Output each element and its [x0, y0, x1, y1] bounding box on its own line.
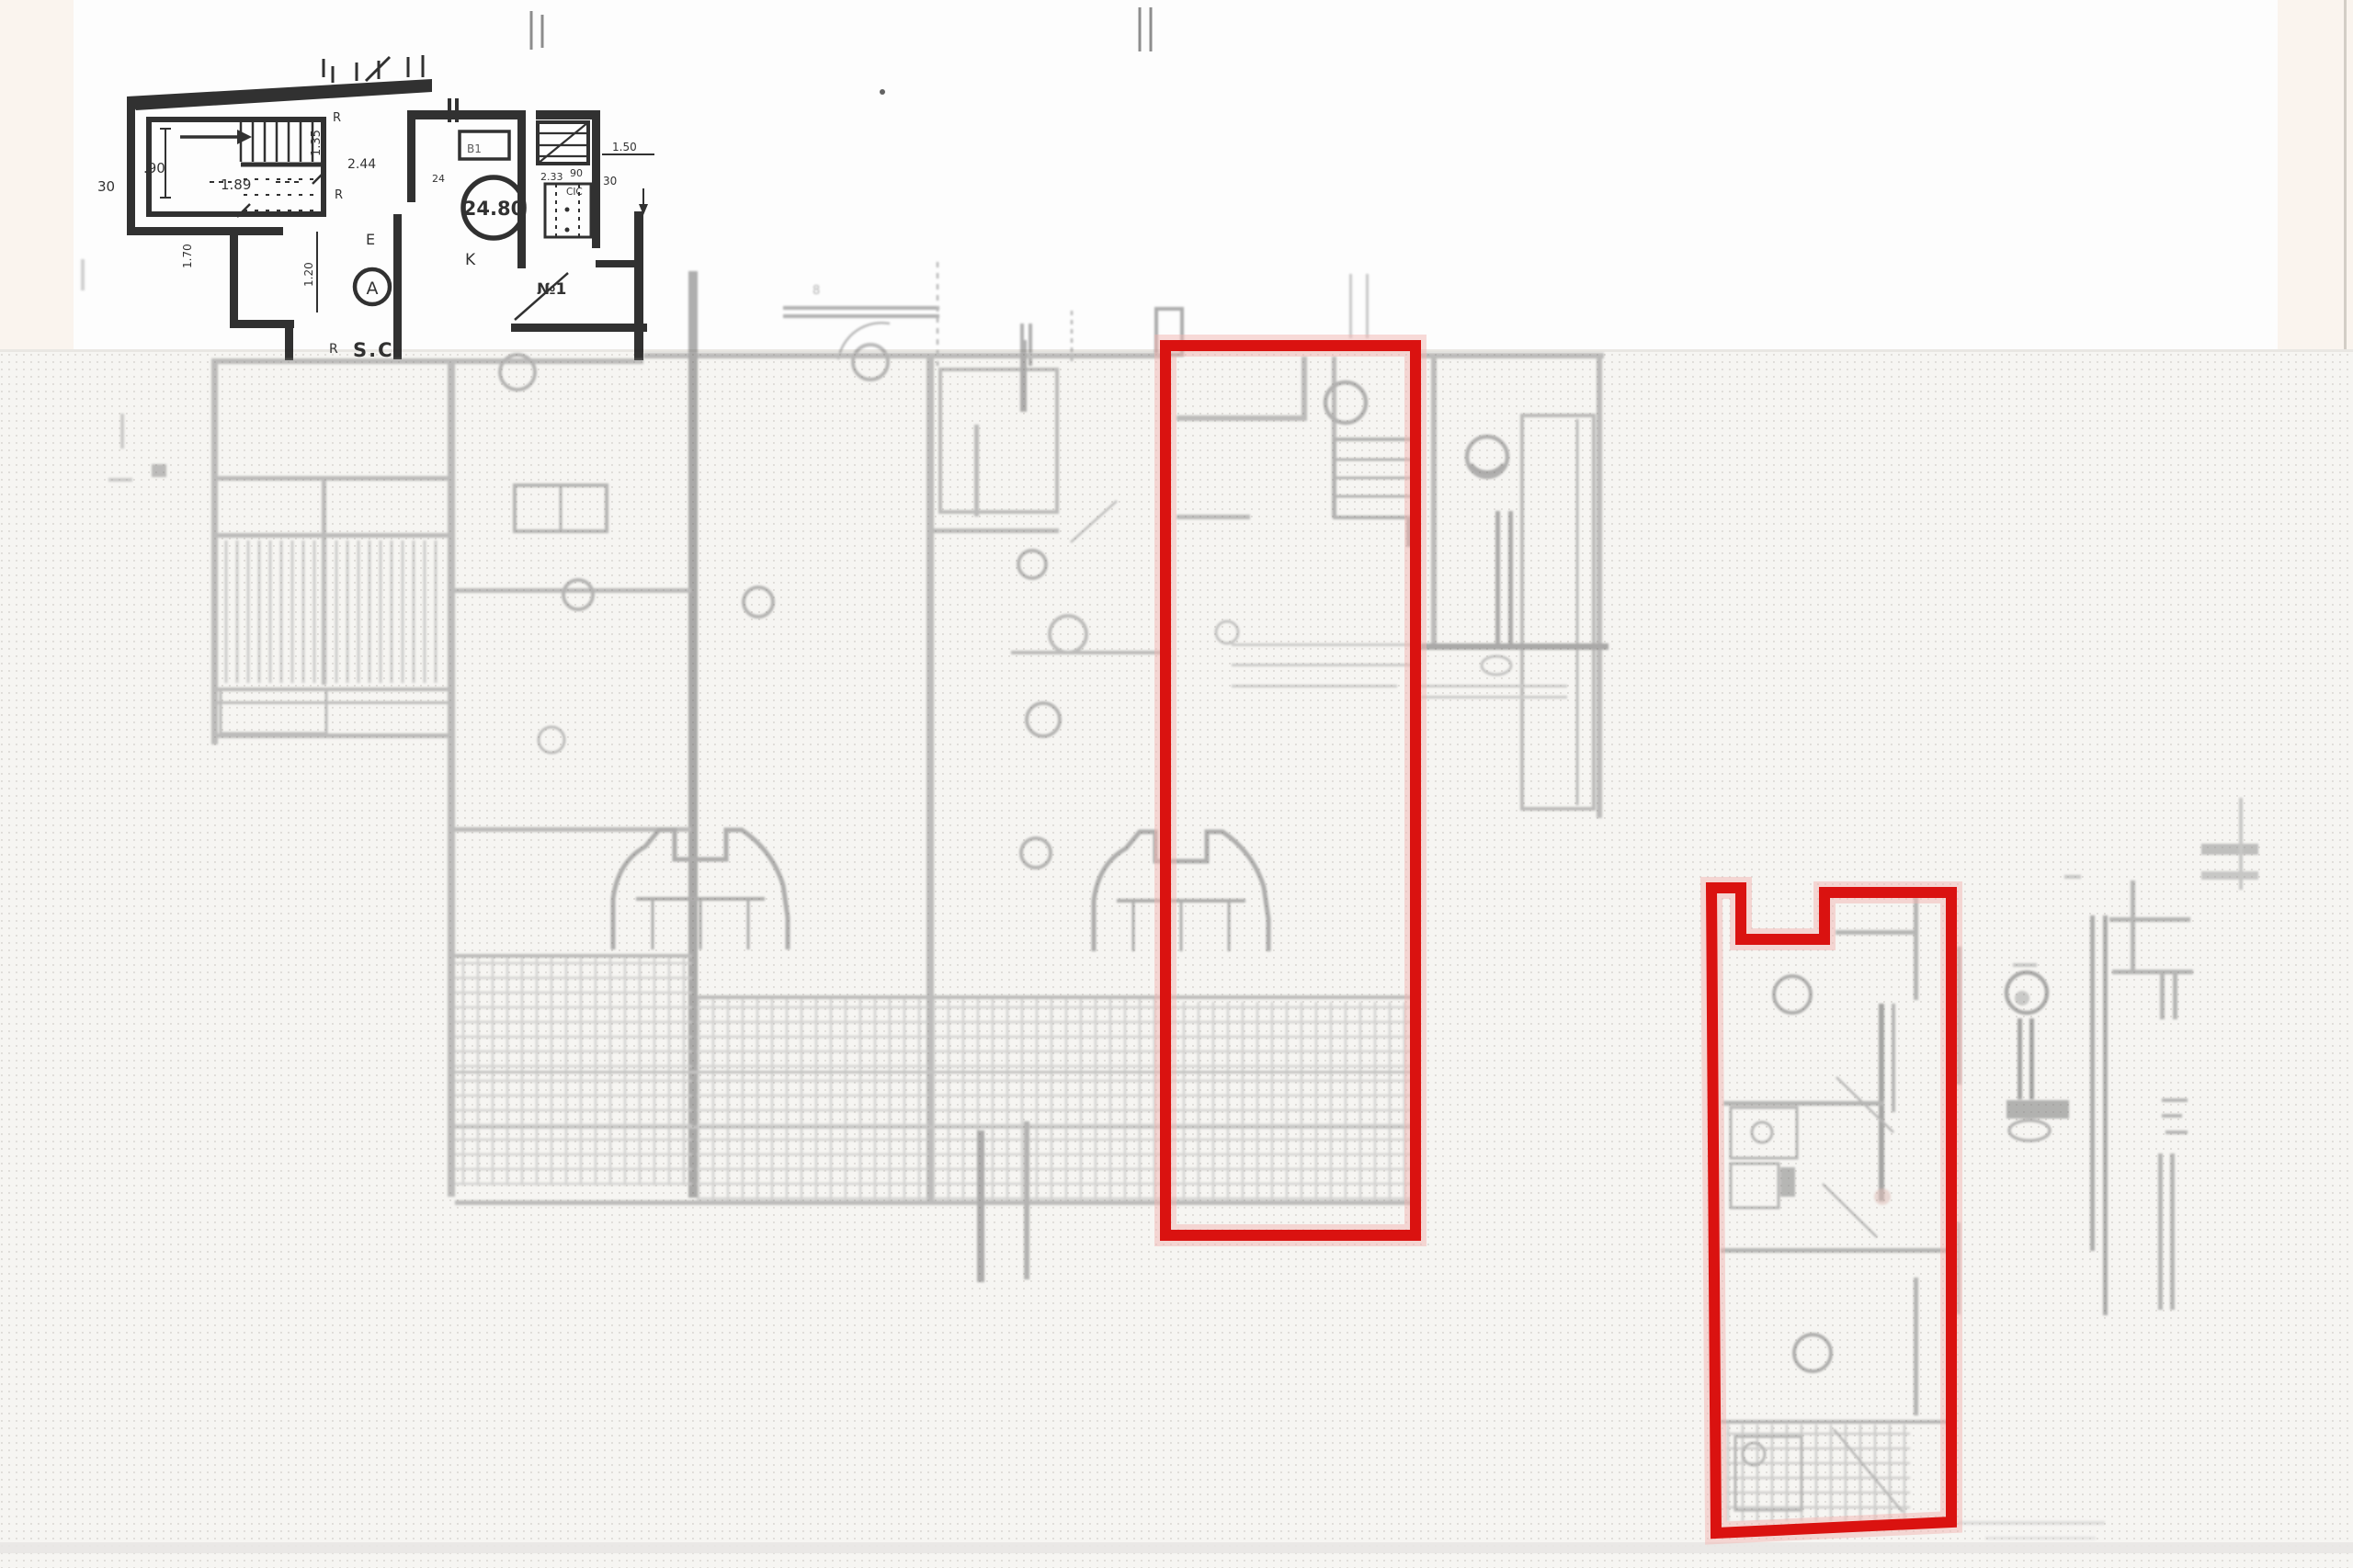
dim-label-hall-height: 1.20 [302, 262, 315, 287]
r-mark-3: R [329, 342, 338, 357]
label-kitchen: K [465, 251, 476, 269]
dim-label-width: 2.33 [540, 171, 563, 183]
r-mark-2: R [335, 188, 343, 202]
floorplan-scan-page: 30 .90 1.89 1.35 2.44 1.20 1.70 E A S.C.… [0, 0, 2353, 1568]
dim-label-left-wall: 30 [97, 178, 115, 195]
dim-label-closet: 90 [570, 167, 583, 179]
dim-label-landing: 1.35 [310, 130, 324, 156]
r-mark-1: R [333, 111, 341, 125]
label-door-b1: B1 [467, 142, 482, 155]
dim-label-left-lower: 1.70 [181, 244, 194, 268]
label-e: E [366, 231, 375, 248]
label-section-a: A [367, 278, 379, 299]
label-closet-cic: CIC [566, 187, 583, 198]
dim-label-small: 24 [432, 173, 445, 185]
faded-dim-note: 8 [813, 284, 820, 298]
dim-label-stair-width: .90 [143, 160, 165, 176]
dim-label-right: 1.50 [612, 141, 637, 153]
label-unit-no1: №1 [537, 280, 566, 299]
dim-label-right-wall: 30 [603, 175, 617, 187]
dim-label-hall: 2.44 [347, 157, 376, 172]
label-staircase-sc: S.C. [353, 339, 404, 361]
area-circle-value: 24.80 [463, 198, 524, 220]
dim-label-stair-length: 1.89 [221, 176, 251, 193]
